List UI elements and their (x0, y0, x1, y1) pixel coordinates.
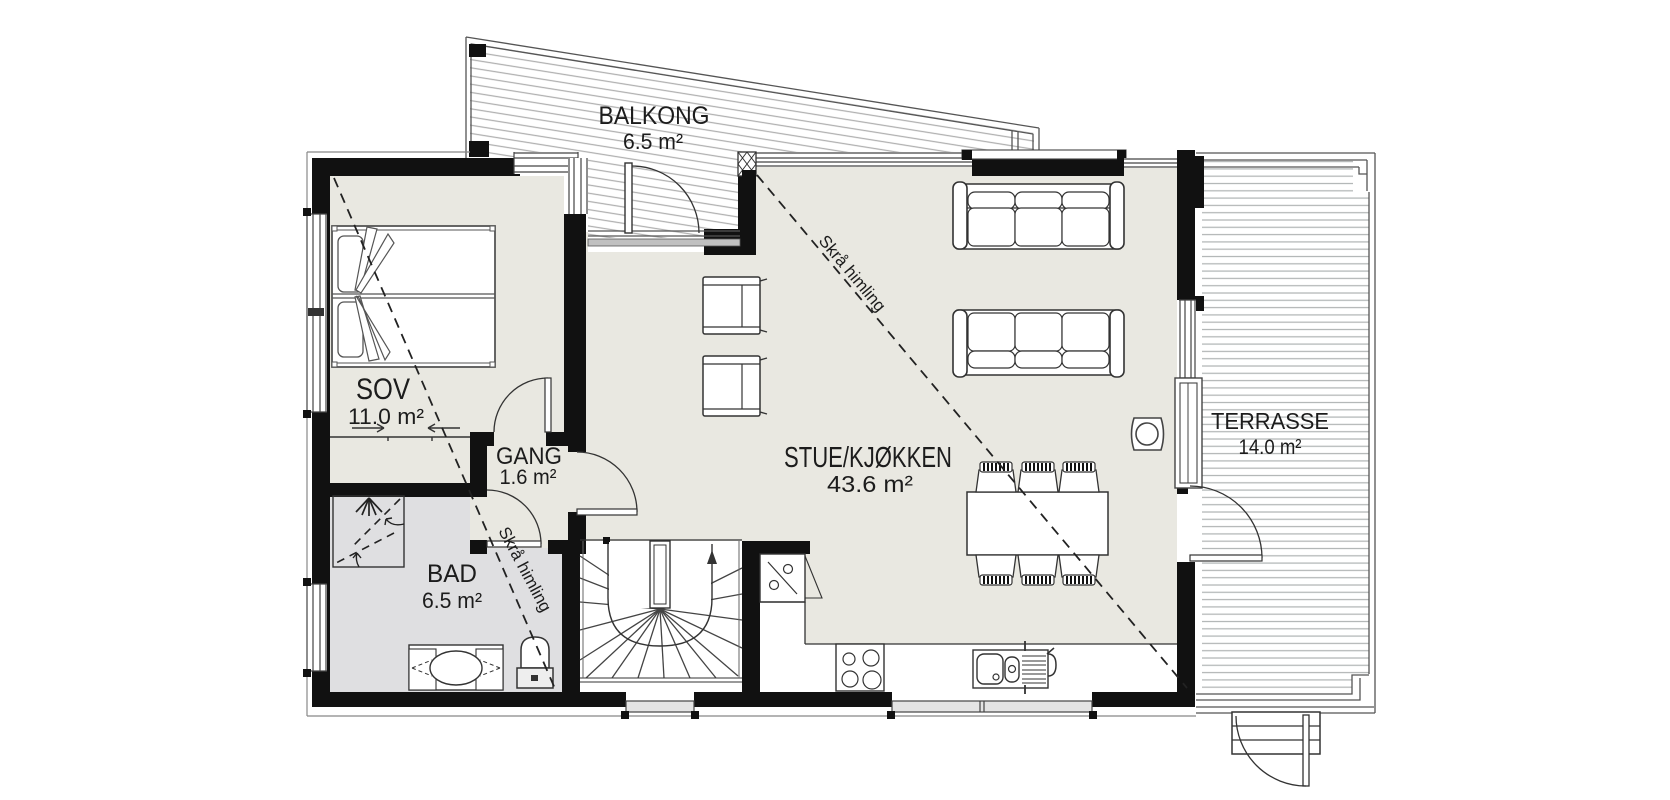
svg-text:6.5 m²: 6.5 m² (422, 588, 482, 613)
svg-text:1.6 m²: 1.6 m² (500, 466, 557, 489)
svg-text:6.5 m²: 6.5 m² (623, 129, 683, 154)
svg-text:TERRASSE: TERRASSE (1211, 408, 1329, 434)
svg-text:14.0 m²: 14.0 m² (1239, 436, 1302, 459)
svg-text:BALKONG: BALKONG (599, 102, 710, 130)
svg-text:43.6 m²: 43.6 m² (827, 471, 913, 497)
svg-text:BAD: BAD (427, 560, 477, 588)
svg-text:11.0 m²: 11.0 m² (348, 404, 424, 429)
svg-text:STUE/KJØKKEN: STUE/KJØKKEN (784, 442, 952, 474)
svg-text:SOV: SOV (356, 373, 410, 406)
